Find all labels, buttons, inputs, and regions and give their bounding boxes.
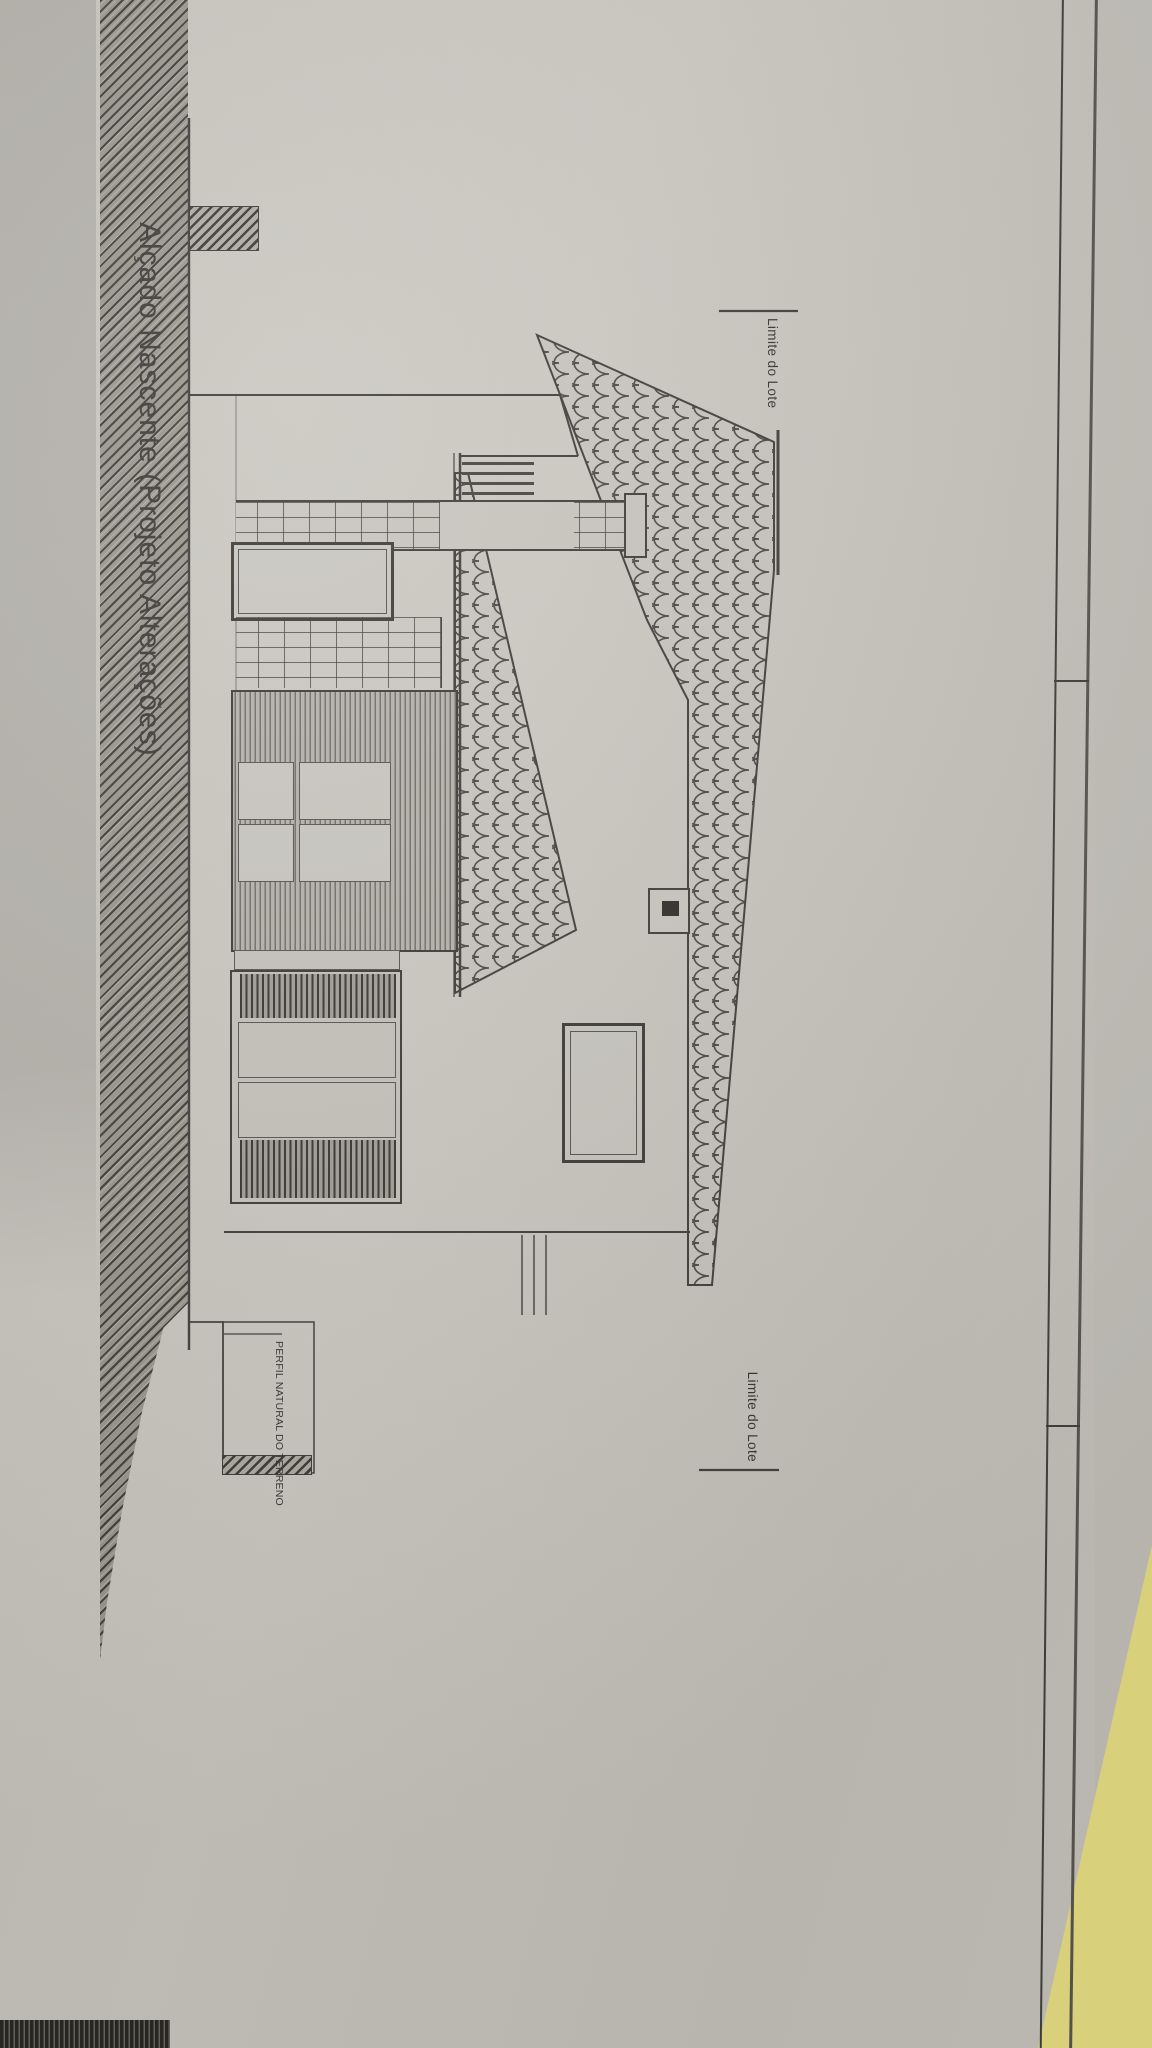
- lot-limit-label-left: Limite do Lote: [765, 318, 780, 408]
- boundary-wall-outline-right: [223, 1322, 314, 1473]
- louvered-window: [231, 690, 458, 952]
- chimney-cap: [624, 493, 647, 558]
- drawing-sheet: Alçado Nascente (Projeto Alterações) Lim…: [0, 0, 1152, 2048]
- flue-opening: [662, 901, 679, 916]
- garage-slat-panel: [240, 1140, 396, 1198]
- window-pane: [299, 762, 391, 820]
- upper-window: [562, 1023, 645, 1163]
- window-pane: [238, 824, 294, 882]
- garage-door: [230, 970, 402, 1204]
- upper-window-frame: [570, 1031, 637, 1155]
- fence-lines: [522, 1235, 546, 1315]
- pilaster-strip: [234, 950, 400, 970]
- terrain-profile-label: PERFIL NATURAL DO TERRENO: [273, 1341, 285, 1506]
- roof-plane-left: [455, 473, 576, 993]
- boundary-wall-section-right: [222, 1455, 312, 1475]
- drawing-title: Alçado Nascente (Projeto Alterações): [132, 222, 166, 757]
- garage-plain-panel: [238, 1022, 396, 1078]
- dark-striped-object: [0, 2020, 170, 2048]
- photo-of-architectural-drawing: Alçado Nascente (Projeto Alterações) Lim…: [0, 0, 1152, 2048]
- roof-flue: [648, 888, 690, 934]
- border-jog: [1054, 680, 1089, 682]
- tall-window-frame: [238, 549, 387, 614]
- garage-plain-panel: [238, 1082, 396, 1138]
- terrain-step-line: [189, 1322, 223, 1472]
- lot-limit-label-right: Limite do Lote: [745, 1352, 760, 1462]
- border-jog: [1046, 1425, 1080, 1427]
- tall-window: [231, 542, 394, 621]
- garage-slat-panel: [240, 974, 396, 1018]
- wall-outline-left: [189, 395, 578, 456]
- window-pane: [299, 824, 391, 882]
- window-pane: [238, 762, 294, 820]
- stone-clad-strip: [236, 617, 442, 688]
- boundary-wall-section-left: [189, 206, 259, 251]
